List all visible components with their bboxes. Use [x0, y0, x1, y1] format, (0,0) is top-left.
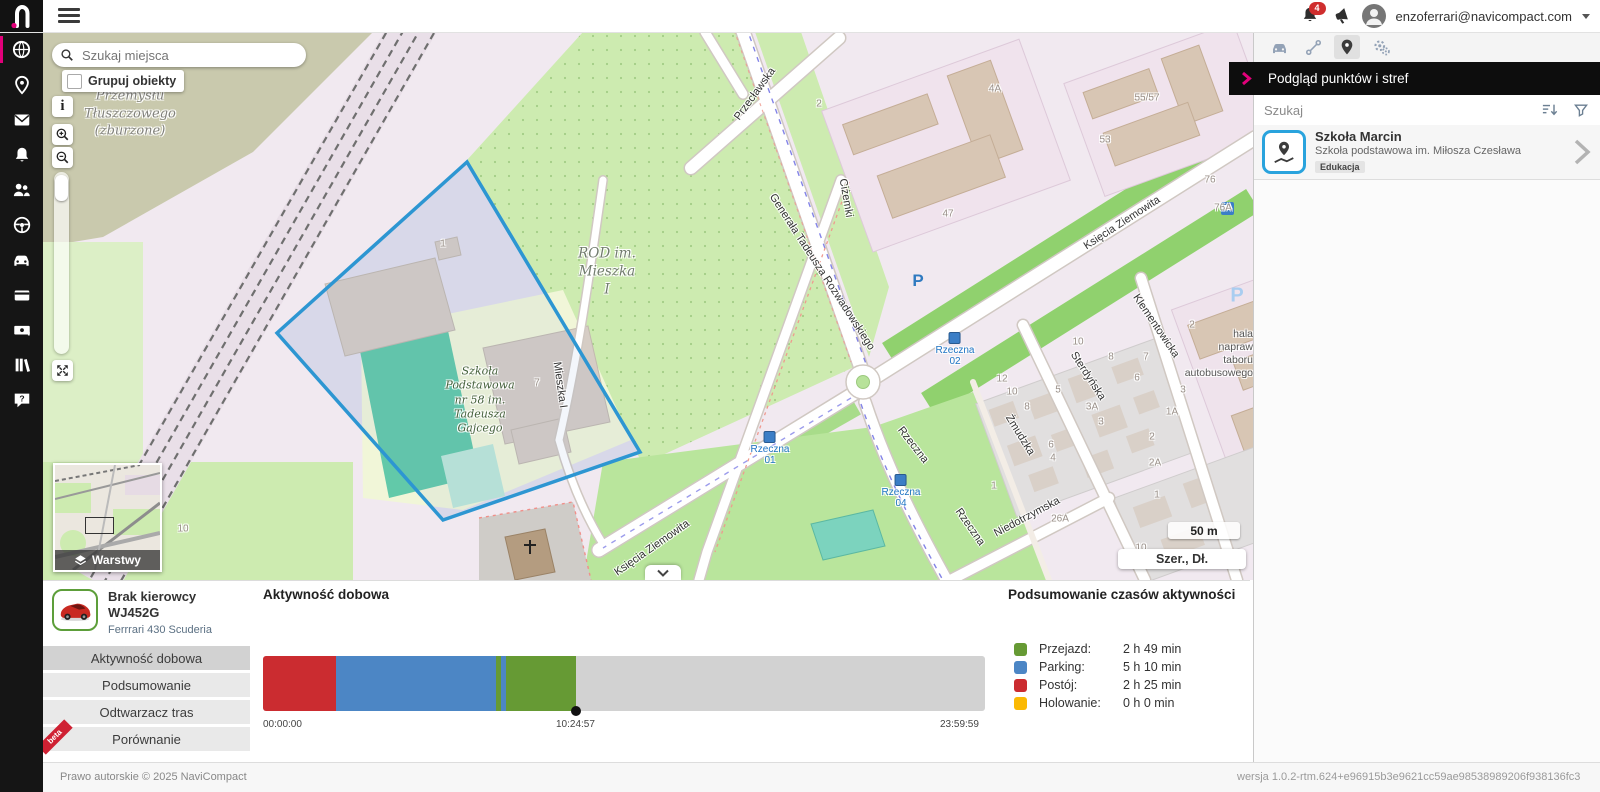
red-car-icon: [57, 597, 93, 623]
legend-label: Postój:: [1039, 678, 1123, 692]
house-number: 2: [1149, 432, 1155, 443]
poi-subtitle: Szkoła podstawowa im. Miłosza Czesława: [1315, 145, 1571, 157]
nav-alerts-item[interactable]: [0, 137, 43, 172]
house-number: 1: [991, 481, 997, 492]
vehicle-model: Ferrrari 430 Scuderia: [108, 624, 212, 636]
poi-category-badge: Edukacja: [1315, 161, 1365, 173]
house-number: 12: [996, 374, 1007, 385]
house-number: 8: [1024, 402, 1030, 413]
nav-cards-item[interactable]: [0, 277, 43, 312]
area-label-industrial: Przemysłu Tłuszczowego (zburzone): [84, 88, 176, 141]
nav-users-item[interactable]: [0, 172, 43, 207]
legend-row-przejazd: Przejazd: 2 h 49 min: [1014, 642, 1181, 656]
user-email[interactable]: enzoferrari@navicompact.com: [1396, 9, 1572, 24]
map-info-button[interactable]: i: [52, 96, 73, 117]
tab-daily-activity[interactable]: Aktywność dobowa: [43, 646, 250, 670]
house-number: 1: [1154, 490, 1160, 501]
nav-points-item[interactable]: [0, 67, 43, 102]
tab-summary[interactable]: Podsumowanie: [43, 673, 250, 697]
group-objects-toggle[interactable]: Grupuj obiekty: [62, 70, 184, 92]
house-number: 10: [1006, 387, 1017, 398]
summary-section-title: Podsumowanie czasów aktywności: [1008, 587, 1235, 602]
user-avatar[interactable]: [1362, 4, 1386, 28]
routes-tab-icon[interactable]: [1300, 35, 1326, 59]
zoom-out-icon: [55, 150, 70, 165]
chevron-right-pink-icon[interactable]: [1241, 71, 1252, 86]
notification-count-badge: 4: [1309, 2, 1326, 15]
map-search-box[interactable]: [52, 43, 306, 67]
zoom-slider[interactable]: [54, 172, 69, 354]
timeline-segment-brak-danych[interactable]: [576, 656, 985, 711]
sort-icon[interactable]: [1541, 102, 1559, 118]
panel-tabs-iconbar: [1254, 32, 1600, 63]
map-base-layer: [43, 32, 1253, 580]
map-scale-indicator: 50 m: [1168, 522, 1240, 539]
legend-swatch-red: [1014, 679, 1027, 692]
legend-row-parking: Parking: 5 h 10 min: [1014, 660, 1181, 674]
user-menu-caret-icon[interactable]: [1582, 14, 1590, 19]
envelope-icon: [12, 110, 32, 130]
house-number: 7: [1143, 352, 1149, 363]
nav-costs-item[interactable]: [0, 312, 43, 347]
top-bar: 4 enzoferrari@navicompact.com: [0, 0, 1600, 33]
timeline-bar[interactable]: [263, 656, 985, 711]
tab-route-player[interactable]: Odtwarzacz tras: [43, 700, 250, 724]
timeline-segment-przejazd[interactable]: [506, 656, 577, 711]
house-number: 47: [942, 209, 953, 220]
app-logo[interactable]: [0, 0, 43, 32]
pin-on-map-icon: [1271, 139, 1297, 165]
search-icon: [60, 48, 74, 62]
chevron-right-icon[interactable]: [1571, 137, 1593, 167]
points-tab-icon[interactable]: [1334, 35, 1360, 59]
minimap-viewport-box[interactable]: [85, 517, 114, 534]
house-number: 2: [816, 99, 822, 110]
area-label-school: Szkoła Podstawowa nr 58 im. Tadeusza Gaj…: [445, 364, 514, 435]
house-number: 6: [1134, 373, 1140, 384]
legend-row-holowanie: Holowanie: 0 h 0 min: [1014, 696, 1174, 710]
navicompact-app: 4 enzoferrari@navicompact.com: [0, 0, 1600, 792]
area-label-depot: hala napraw taboru autobusowego: [1175, 328, 1253, 381]
house-number: 2A: [1149, 458, 1161, 469]
timeline-start-time: 00:00:00: [263, 719, 302, 730]
vehicles-tab-icon[interactable]: [1266, 35, 1292, 59]
house-number: 4A: [989, 84, 1001, 95]
layers-icon: [74, 554, 87, 567]
fit-extent-button[interactable]: [52, 360, 73, 381]
house-number: 3: [1098, 417, 1104, 428]
settings-tab-icon[interactable]: [1368, 35, 1394, 59]
zoom-in-button[interactable]: [52, 124, 73, 145]
map-search-input[interactable]: [80, 47, 264, 64]
timeline-end-time: 23:59:59: [940, 719, 979, 730]
version-text: wersja 1.0.2-rtm.624+e96915b3e9621cc59ae…: [1237, 771, 1580, 783]
house-number: 2: [1189, 320, 1195, 331]
legend-value: 2 h 49 min: [1123, 642, 1181, 656]
legend-swatch-yellow: [1014, 697, 1027, 710]
nav-vehicles-item[interactable]: [0, 242, 43, 277]
map-pin-icon: [12, 75, 32, 95]
legend-label: Parking:: [1039, 660, 1123, 674]
bus-stop-label: Rzeczna 01: [751, 431, 790, 466]
nav-messages-item[interactable]: [0, 102, 43, 137]
timeline-segment-postoj[interactable]: [263, 656, 336, 711]
filter-funnel-icon[interactable]: [1573, 102, 1589, 118]
zoom-slider-handle[interactable]: [55, 175, 68, 201]
poi-category-icon: [1262, 130, 1306, 174]
map-canvas[interactable]: Przemysłu Tłuszczowego (zburzone) ROD im…: [43, 32, 1253, 580]
house-number: 1A: [1166, 407, 1178, 418]
steering-wheel-icon: [12, 215, 32, 235]
help-chat-icon: ?: [12, 390, 32, 410]
menu-hamburger-icon[interactable]: [58, 8, 80, 24]
chevron-down-icon: [657, 569, 669, 577]
svg-text:?: ?: [19, 393, 24, 403]
bus-stop-label: Rzeczna 04: [882, 474, 921, 509]
house-number: 10: [1072, 337, 1083, 348]
footer-bar: Prawo autorskie © 2025 NaviCompact wersj…: [43, 762, 1600, 792]
house-number: 26A: [1051, 514, 1069, 525]
overview-minimap[interactable]: Warstwy: [53, 463, 162, 572]
banknote-icon: [12, 320, 32, 340]
panel-search-input[interactable]: Szukaj: [1264, 103, 1541, 118]
poi-title: Szkoła Marcin: [1315, 129, 1571, 144]
panel-header: Podgląd punktów i stref: [1229, 62, 1600, 95]
timeline-marker-time: 10:24:57: [556, 719, 595, 730]
left-navigation-rail: ?: [0, 32, 43, 792]
nav-help-item[interactable]: ?: [0, 382, 43, 417]
credit-card-icon: [12, 285, 32, 305]
coordinates-button[interactable]: Szer., Dł.: [1118, 549, 1246, 569]
legend-label: Holowanie:: [1039, 696, 1123, 710]
points-zones-panel: Podgląd punktów i stref Szukaj Szkoła Ma…: [1253, 32, 1600, 762]
legend-label: Przejazd:: [1039, 642, 1123, 656]
panel-title: Podgląd punktów i stref: [1268, 71, 1408, 86]
timeline-segment-parking[interactable]: [336, 656, 496, 711]
vehicle-photo-icon: [52, 589, 98, 631]
vehicle-plate: WJ452G: [108, 605, 212, 621]
nav-reports-item[interactable]: [0, 347, 43, 382]
vehicle-card[interactable]: Brak kierowcy WJ452G Ferrrari 430 Scuder…: [52, 589, 212, 636]
house-number: 10: [177, 524, 188, 535]
car-icon: [11, 249, 32, 270]
house-number: 3A: [1086, 402, 1098, 413]
copyright-text: Prawo autorskie © 2025 NaviCompact: [60, 771, 247, 783]
timeline-current-marker[interactable]: [571, 706, 581, 716]
zoom-out-button[interactable]: [52, 147, 73, 168]
poi-list-item[interactable]: Szkoła Marcin Szkoła podstawowa im. Miło…: [1254, 125, 1600, 180]
house-number: 1: [440, 239, 446, 250]
nav-drivers-item[interactable]: [0, 207, 43, 242]
collapse-bottom-panel-button[interactable]: [645, 565, 681, 580]
house-number: 6: [1048, 440, 1054, 451]
globe-icon: [11, 39, 32, 60]
house-number: 76A: [1214, 203, 1232, 214]
bell-icon: [12, 145, 32, 165]
vehicle-driver-status: Brak kierowcy: [108, 589, 212, 605]
house-number: 5: [1055, 385, 1061, 396]
announcements-megaphone-icon[interactable]: [1332, 6, 1352, 26]
zoom-in-icon: [55, 127, 70, 142]
activity-section-title: Aktywność dobowa: [263, 587, 389, 602]
group-objects-checkbox[interactable]: [67, 74, 82, 89]
parking-icon: P: [1230, 285, 1243, 308]
books-icon: [12, 355, 32, 375]
parking-icon: P: [912, 271, 923, 291]
house-number: 4: [1050, 453, 1056, 464]
layers-label: Warstwy: [92, 553, 141, 567]
house-number: 3: [1180, 385, 1186, 396]
house-number: 55/57: [1134, 93, 1159, 104]
legend-value: 2 h 25 min: [1123, 678, 1181, 692]
house-number: 76: [1204, 175, 1215, 186]
house-number: 7: [534, 378, 540, 389]
legend-value: 0 h 0 min: [1123, 696, 1174, 710]
group-objects-label: Grupuj obiekty: [88, 74, 176, 88]
bus-stop-label: Rzeczna 02: [936, 332, 975, 367]
legend-swatch-blue: [1014, 661, 1027, 674]
activity-timeline: [263, 656, 985, 711]
house-number: 53: [1099, 135, 1110, 146]
layers-button[interactable]: Warstwy: [55, 550, 160, 570]
tab-comparison[interactable]: Porównanie: [43, 727, 250, 751]
area-label-rod: ROD im. Mieszka I: [578, 245, 636, 300]
legend-value: 5 h 10 min: [1123, 660, 1181, 674]
notifications-bell-icon[interactable]: 4: [1300, 5, 1322, 27]
users-icon: [11, 179, 32, 200]
legend-row-postoj: Postój: 2 h 25 min: [1014, 678, 1181, 692]
activity-panel: Brak kierowcy WJ452G Ferrrari 430 Scuder…: [43, 580, 1250, 763]
nav-map-item[interactable]: [0, 32, 43, 67]
legend-swatch-green: [1014, 643, 1027, 656]
navicompact-logo-icon: [9, 3, 35, 29]
house-number: 8: [1108, 352, 1114, 363]
expand-arrows-icon: [55, 363, 70, 378]
panel-search-row: Szukaj: [1254, 95, 1600, 126]
